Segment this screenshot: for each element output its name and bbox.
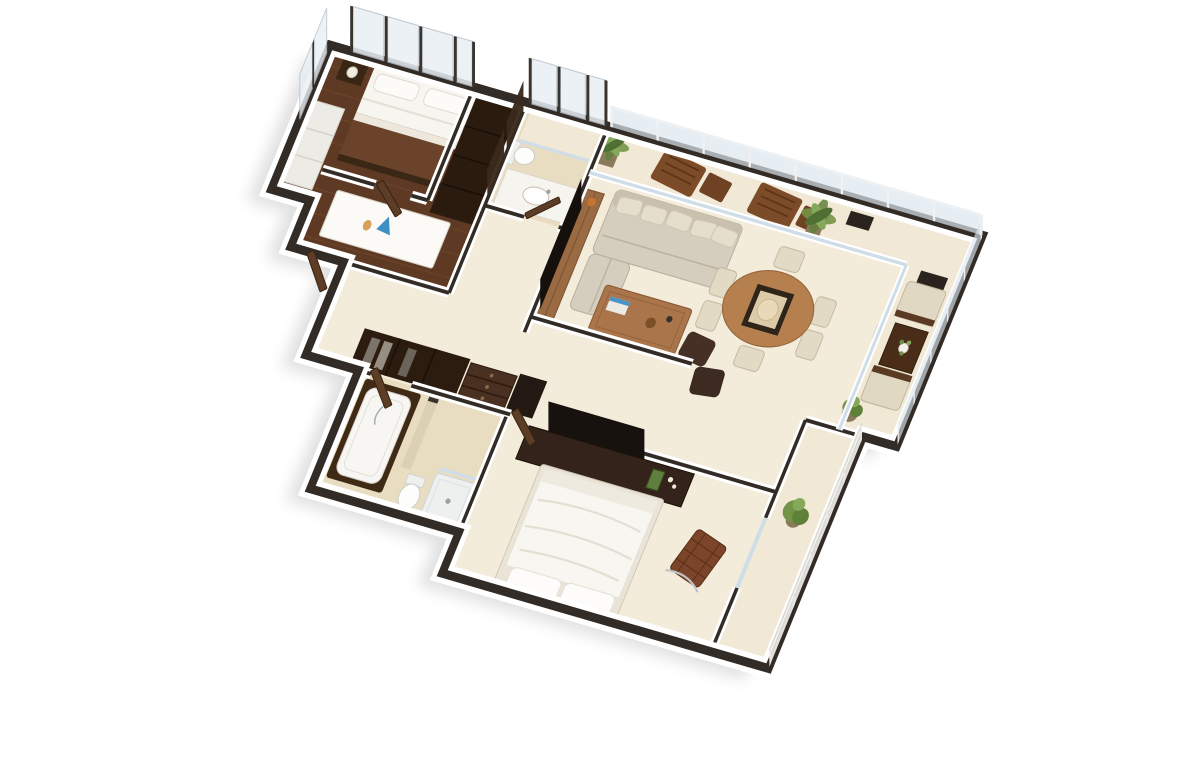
floor-plan-3d-render [0,0,1200,778]
floor-plan-canvas [0,0,1200,778]
